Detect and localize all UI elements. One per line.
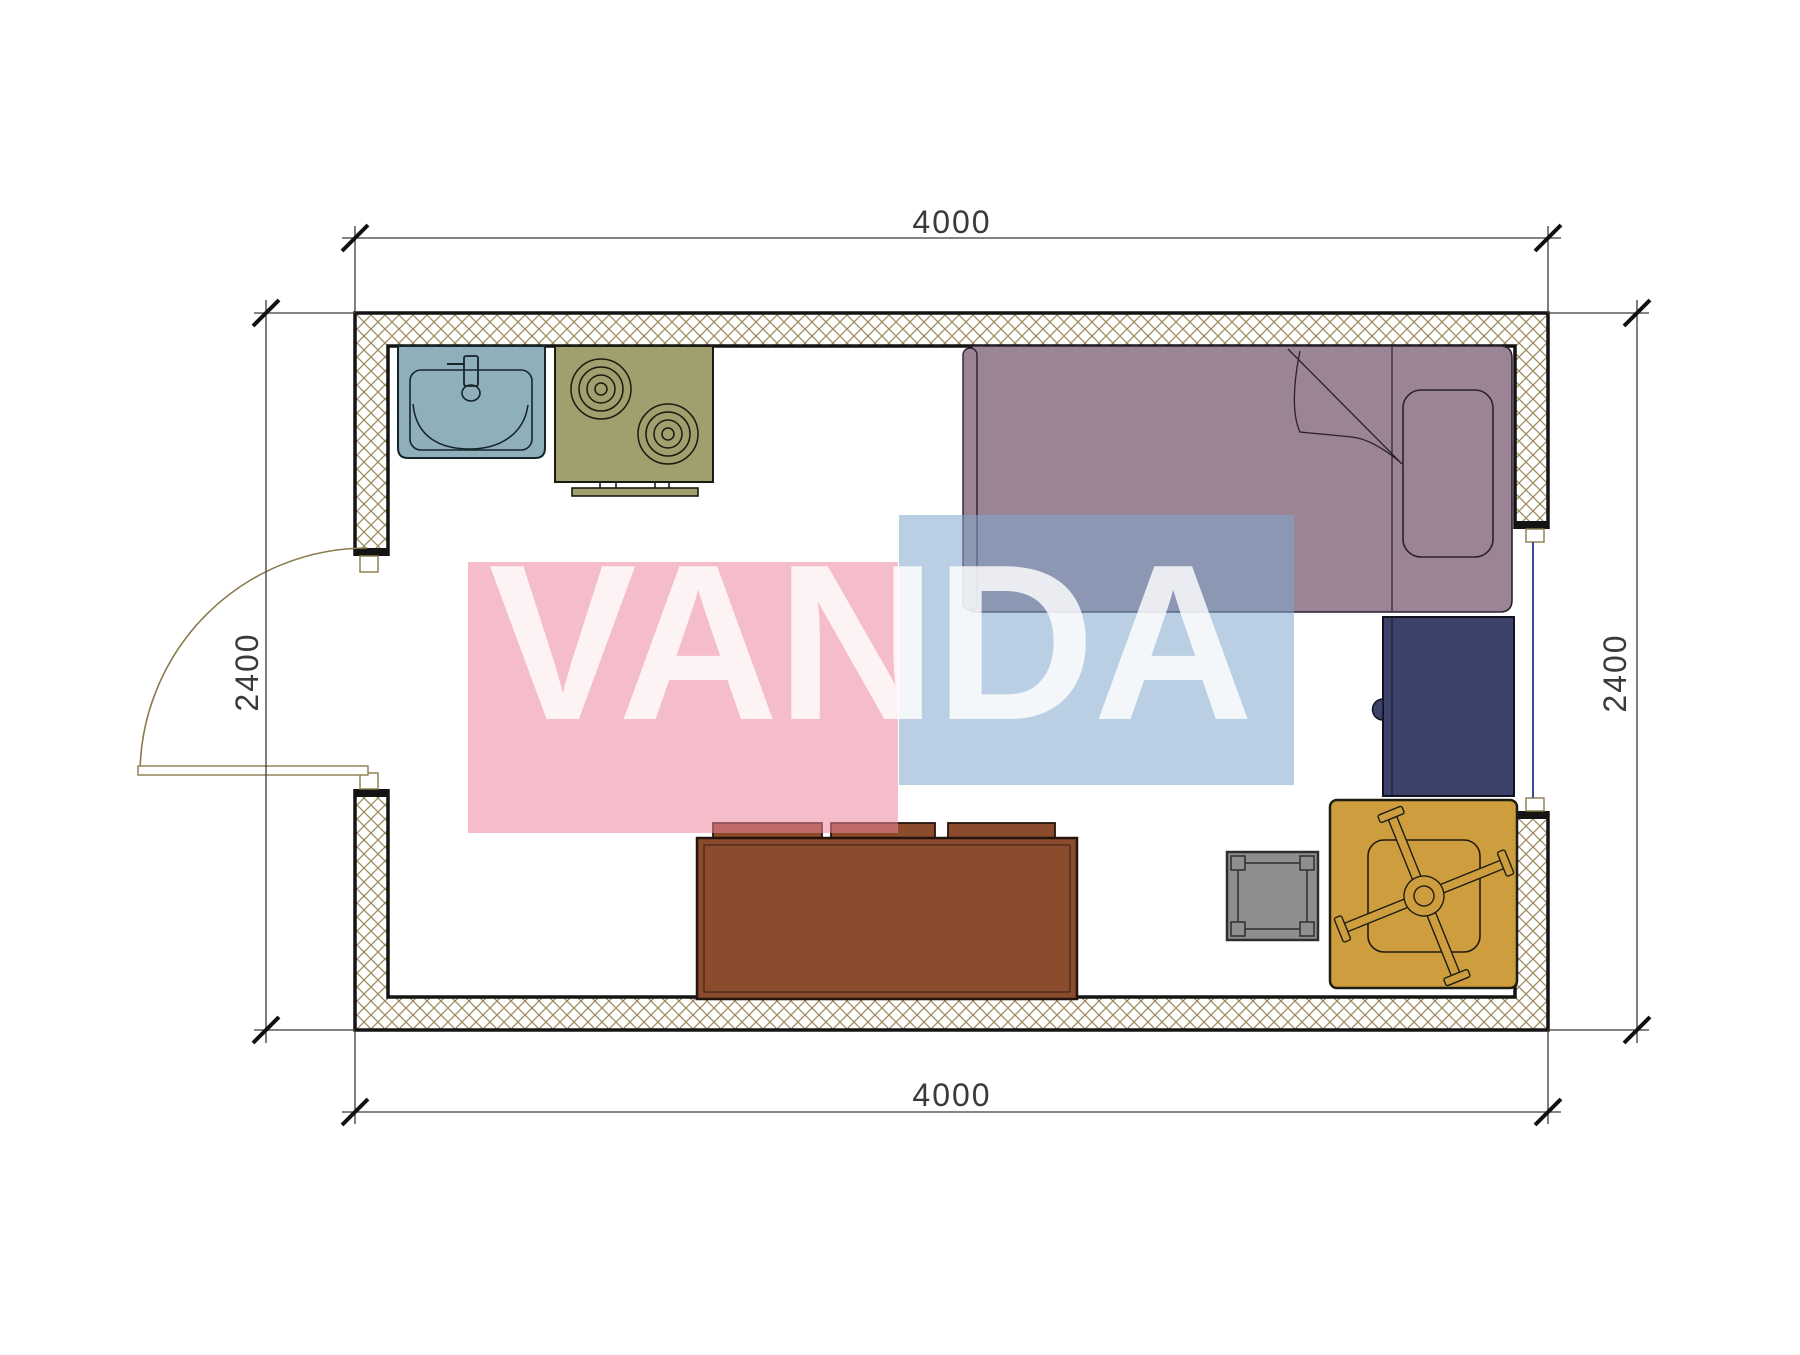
sink-counter — [398, 346, 545, 458]
dim-bottom-label: 4000 — [912, 1077, 991, 1113]
dimension-left: 2400 — [229, 300, 355, 1043]
pillow — [1403, 390, 1493, 557]
watermark: VANDA — [468, 515, 1294, 833]
dimension-bottom: 4000 — [342, 1030, 1561, 1125]
dim-left-label: 2400 — [229, 632, 265, 711]
floor-plan-drawing: 4000 4000 2400 2400 VANDA — [0, 0, 1800, 1350]
stove-front-bar — [572, 488, 698, 496]
dim-right-label: 2400 — [1597, 633, 1633, 712]
stove-body — [555, 346, 713, 482]
swivel-armchair — [1304, 776, 1544, 1016]
wall-cap — [1514, 521, 1549, 529]
desk-knob — [1373, 699, 1383, 720]
watermark-text: VANDA — [489, 519, 1252, 767]
door-jamb-top — [360, 556, 378, 572]
desk — [1373, 617, 1514, 796]
dimension-right: 2400 — [1548, 300, 1650, 1043]
dimension-top: 4000 — [342, 204, 1561, 313]
side-stool — [1227, 852, 1318, 940]
floor-plan-page: 4000 4000 2400 2400 VANDA — [0, 0, 1800, 1350]
wall-cap — [1514, 811, 1549, 819]
door-opening — [349, 556, 394, 789]
window-jamb-top — [1526, 529, 1544, 542]
kitchen-sink — [398, 346, 545, 458]
dim-top-label: 4000 — [912, 204, 991, 240]
window-opening — [1509, 529, 1554, 811]
stove — [555, 346, 713, 496]
wall-cap — [354, 548, 389, 556]
door-leaf — [138, 766, 368, 775]
desk-top — [1383, 617, 1514, 796]
wall-cap — [354, 789, 389, 797]
sofa-body — [697, 838, 1077, 999]
window-jamb-bottom — [1526, 798, 1544, 811]
sofa — [697, 823, 1077, 999]
